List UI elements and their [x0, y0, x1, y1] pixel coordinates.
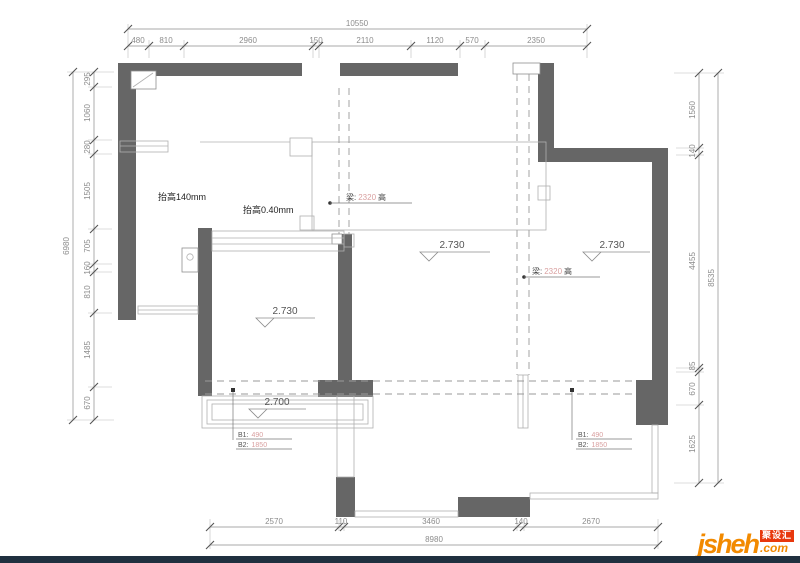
raise-label-left: 抬高140mm: [158, 191, 206, 202]
floorplan-drawing: 10550 480 810 2960 150 2110 1120 570 235…: [0, 0, 800, 563]
window-tag-dot: [231, 388, 235, 392]
dim-left-total: 6980: [62, 237, 71, 255]
bench-inner-lines: [212, 238, 344, 244]
jsheh-logo[interactable]: jsheh 聚设汇 .com: [697, 530, 794, 554]
logo-right-stack: 聚设汇 .com: [760, 530, 794, 554]
dim-left-seg-6: 810: [83, 285, 92, 299]
level-value: 2.730: [439, 240, 464, 251]
column-marker: [332, 234, 342, 244]
dimension-bottom: 8980 2570 110 3460 140 2670: [206, 517, 662, 549]
logo-tld: .com: [760, 542, 788, 554]
wall-middle-vertical: [338, 234, 352, 380]
dim-top-seg-3: 150: [309, 36, 323, 45]
dim-bottom-seg-4: 2670: [582, 517, 600, 526]
beam-label-2-text: 梁:2320高: [532, 266, 572, 276]
beam-dashed-horizontal: [205, 381, 636, 394]
dim-right-total: 8535: [707, 269, 716, 287]
dim-right-seg-3: 85: [688, 361, 697, 370]
terrace-left-wall: [337, 396, 354, 477]
dimension-left: 6980 295 1060 280 1505 705 160 810 1485 …: [62, 68, 114, 424]
dim-left-seg-1: 1060: [83, 104, 92, 122]
beam-dashed-lines: [205, 74, 636, 394]
dim-bottom-seg-0: 2570: [265, 517, 283, 526]
footer-bar: [0, 556, 800, 563]
level-triangle: [583, 252, 650, 261]
dim-bottom-seg-2: 3460: [422, 517, 440, 526]
wall-right-vertical-upper: [538, 63, 554, 150]
dim-top-seg-0: 480: [131, 36, 145, 45]
window-tag-line2: B2:1850: [578, 442, 607, 449]
wall-top-c: [340, 63, 458, 76]
window-tag-line1: B1:490: [578, 432, 603, 439]
dim-top-seg-4: 2110: [356, 36, 374, 45]
dim-bottom-total: 8980: [425, 535, 443, 544]
level-triangle: [249, 409, 306, 418]
dimension-right: 8535 1560 140 4455 85 670 1625: [674, 69, 724, 487]
dim-bottom-seg-1: 110: [335, 517, 348, 526]
dim-top-seg-6: 570: [465, 36, 479, 45]
dim-right-seg-4: 670: [688, 382, 697, 396]
openings: [131, 63, 540, 272]
dimension-top: 10550 480 810 2960 150 2110 1120 570 235…: [124, 19, 591, 58]
wall-terrace-bottom-block: [458, 497, 530, 517]
top-window-570: [513, 63, 540, 74]
terrace-bottom-line: [355, 511, 458, 517]
beam-label-1-text: 梁:2320高: [346, 192, 386, 202]
beam-label-1: 梁:2320高: [328, 192, 412, 205]
dim-left-seg-3: 1505: [83, 182, 92, 200]
dim-top-seg-2: 2960: [239, 36, 257, 45]
dim-left-seg-5: 160: [83, 261, 92, 275]
platform-notch-right: [538, 186, 550, 200]
bench-outline: [212, 231, 344, 251]
platform-step: [290, 138, 312, 156]
level-value: 2.730: [599, 240, 624, 251]
wall-terrace-column: [336, 477, 355, 517]
dim-left-seg-8: 670: [83, 396, 92, 410]
level-triangle: [256, 318, 315, 327]
dim-right-seg-5: 1625: [688, 435, 697, 453]
beam-label-2: 梁:2320高: [522, 266, 600, 279]
level-marker-right-room: 2.730: [583, 240, 650, 261]
dim-top-seg-1: 810: [159, 36, 173, 45]
dim-bottom-seg-3: 140: [514, 517, 528, 526]
wall-left-outer: [118, 63, 136, 320]
raised-platform-outline: [312, 142, 546, 230]
level-value: 2.730: [272, 306, 297, 317]
dim-left-seg-7: 1485: [83, 341, 92, 359]
wall-top-b: [152, 63, 302, 76]
dim-right-seg-1: 140: [688, 144, 697, 158]
wall-block-bottom-right: [636, 380, 668, 425]
window-tag-dot: [570, 388, 574, 392]
beam-dashed-vertical-right: [517, 74, 529, 375]
dim-left-seg-0: 295: [83, 72, 92, 86]
dim-left-seg-4: 705: [83, 239, 92, 253]
floorplan-page: 10550 480 810 2960 150 2110 1120 570 235…: [0, 0, 800, 563]
window-tag-line1: B1:490: [238, 432, 263, 439]
window-tag-line2: B2:1850: [238, 442, 267, 449]
logo-brand-text: jsheh: [697, 534, 758, 554]
balcony-right-side-line: [652, 425, 658, 493]
window-tag-leader: [572, 392, 632, 449]
dim-right-seg-2: 4455: [688, 252, 697, 270]
beam-dashed-vertical-left: [339, 88, 349, 234]
balcony-right-bottom-line: [530, 493, 658, 499]
level-triangle: [420, 252, 490, 261]
level-marker-living: 2.730: [420, 240, 490, 261]
dim-top-seg-7: 2350: [527, 36, 545, 45]
window-tag-right: B1:490 B2:1850: [570, 388, 632, 449]
dim-top-total: 10550: [346, 19, 369, 28]
dim-top-seg-5: 1120: [426, 36, 444, 45]
wall-room-left-west: [198, 228, 212, 396]
dim-right-seg-0: 1560: [688, 101, 697, 119]
level-marker-left-room: 2.730: [256, 306, 315, 327]
level-value: 2.700: [264, 397, 289, 408]
wall-right-horizontal: [538, 148, 668, 162]
dim-left-seg-2: 280: [83, 140, 92, 154]
raise-label-center: 抬高0.40mm: [243, 204, 294, 215]
